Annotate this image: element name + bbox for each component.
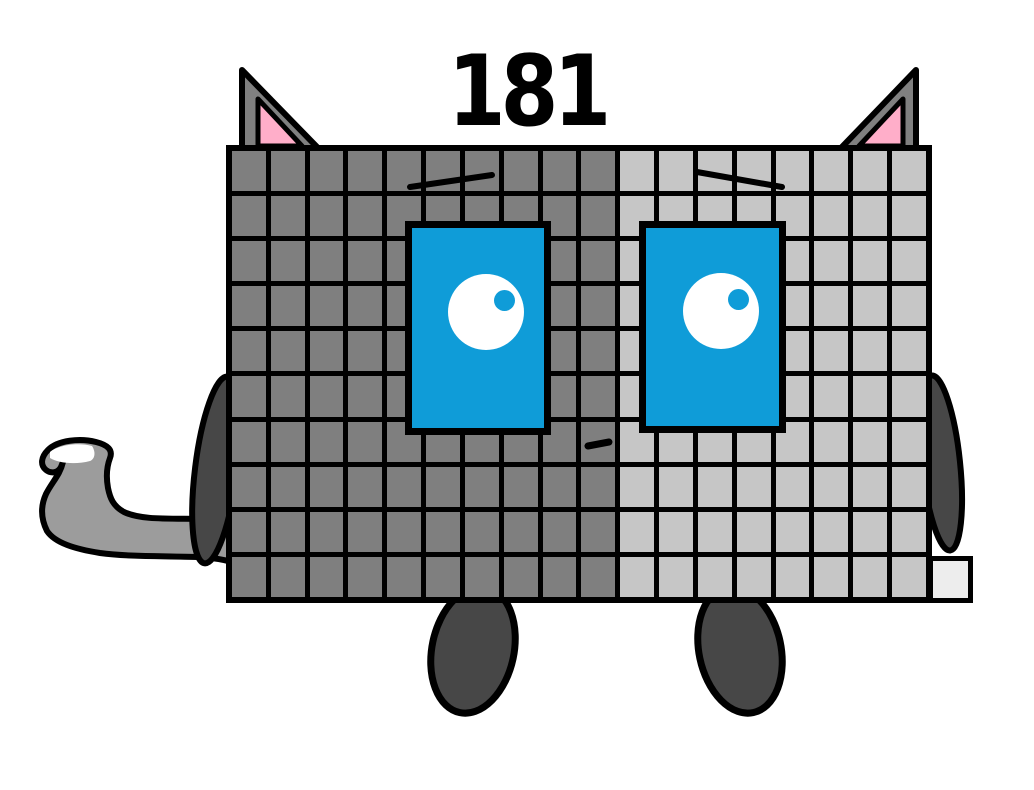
left-eye-highlight	[494, 290, 515, 311]
left-eyebrow	[410, 175, 492, 187]
right-eye	[639, 221, 786, 433]
mouth	[588, 442, 609, 446]
left-eye	[405, 221, 551, 435]
right-eyebrow	[697, 172, 782, 187]
right-eye-pupil	[683, 273, 759, 349]
illustration-canvas: 181	[0, 0, 1034, 790]
left-eye-pupil	[448, 274, 524, 350]
right-eye-highlight	[728, 289, 749, 310]
